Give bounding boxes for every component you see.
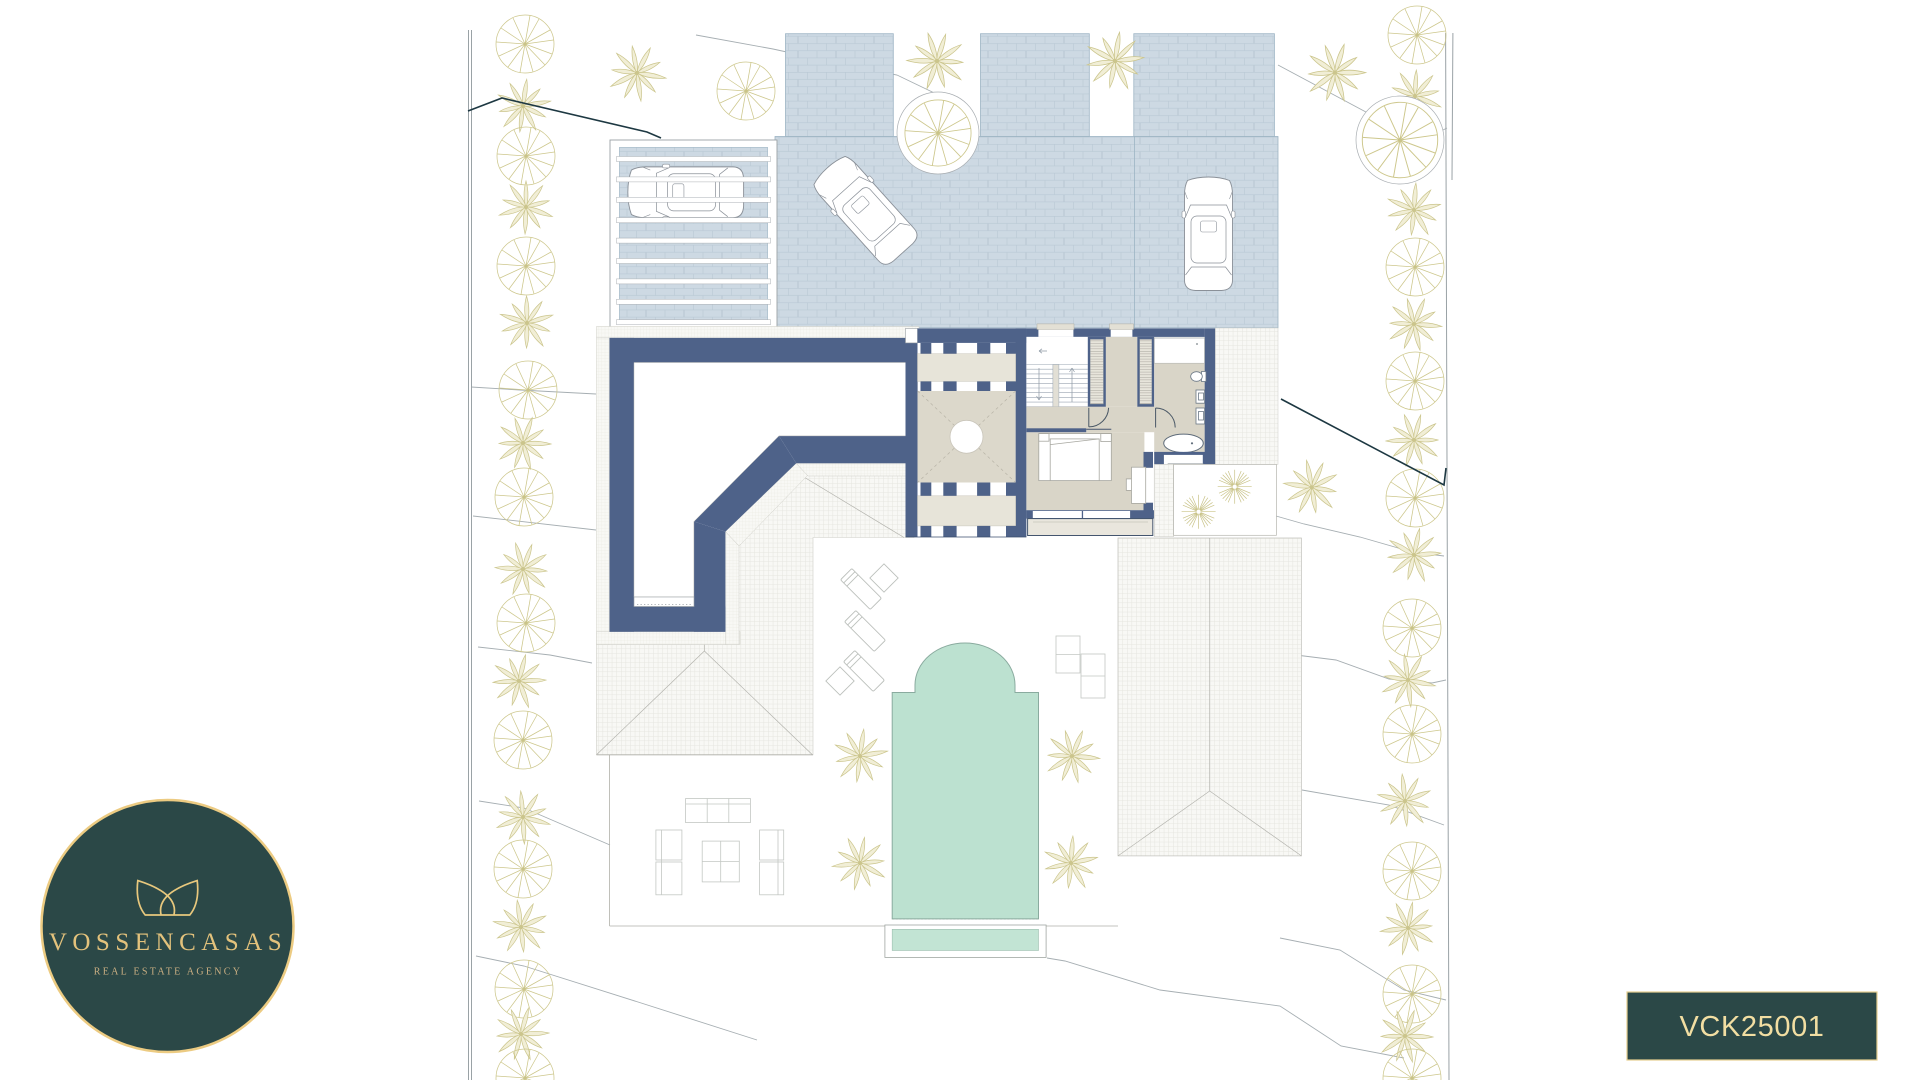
svg-text:REAL ESTATE AGENCY: REAL ESTATE AGENCY <box>94 967 243 978</box>
svg-text:VOSSENCASAS: VOSSENCASAS <box>49 929 287 956</box>
svg-text:VCK25001: VCK25001 <box>1679 1011 1824 1043</box>
